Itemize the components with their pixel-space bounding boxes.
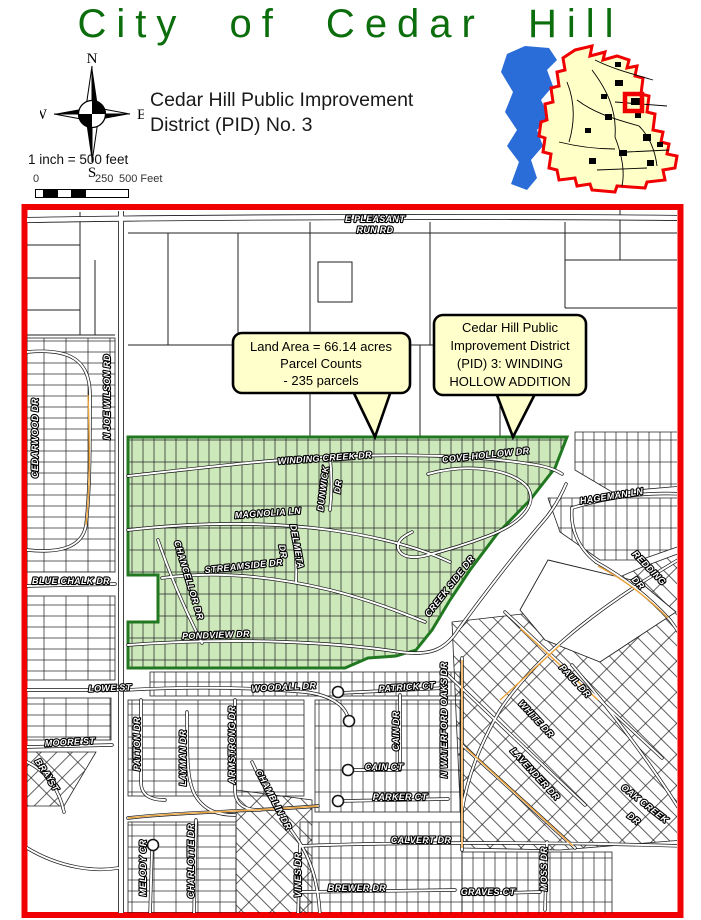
street-label: LOWE ST: [88, 682, 133, 694]
street-label: CAIN CT: [365, 762, 405, 772]
street-label: PARKER CT: [373, 792, 429, 802]
street-label: CHARLOTTE DR: [186, 824, 196, 899]
street-label: GRAVES CT: [461, 887, 517, 897]
street-label: E PLEASANT: [345, 214, 406, 224]
street-label: CEDARWOOD DR: [30, 398, 40, 478]
callout-line: HOLLOW ADDITION: [449, 374, 570, 389]
map-canvas: E PLEASANTRUN RDN JOE WILSON RDCEDARWOOD…: [0, 0, 701, 920]
street-label: BREWER DR: [328, 883, 386, 893]
street-label: RUN RD: [357, 225, 394, 235]
street-label: VINES DR: [293, 852, 303, 897]
street-label: N JOE WILSON RD: [102, 354, 112, 440]
callout-line: - 235 parcels: [283, 373, 359, 388]
street-label: MOSS DR: [539, 847, 549, 891]
street-label: CAIN DR: [391, 711, 401, 751]
street-label: LAYMAN DR: [178, 730, 188, 786]
map-document-page: City of Cedar Hill N S E W Cedar Hill Pu…: [0, 0, 701, 920]
street-label: N WATERFORD OAKS DR: [439, 662, 449, 778]
street-label: DR: [332, 479, 344, 494]
callout-line: Parcel Counts: [280, 356, 362, 371]
street-label: BLUE CHALK DR: [32, 576, 110, 586]
street-label: ARMSTRONG DR: [227, 706, 237, 785]
street-label: CALVERT DR: [391, 835, 452, 845]
callout-line: Improvement District: [450, 338, 570, 353]
callout-line: Land Area = 66.14 acres: [250, 339, 393, 354]
street-label: PATTON DR: [132, 717, 142, 771]
callout-line: (PID) 3: WINDING: [457, 356, 563, 371]
street-label: MELODY CR: [138, 840, 148, 897]
callout-line: Cedar Hill Public: [462, 320, 559, 335]
